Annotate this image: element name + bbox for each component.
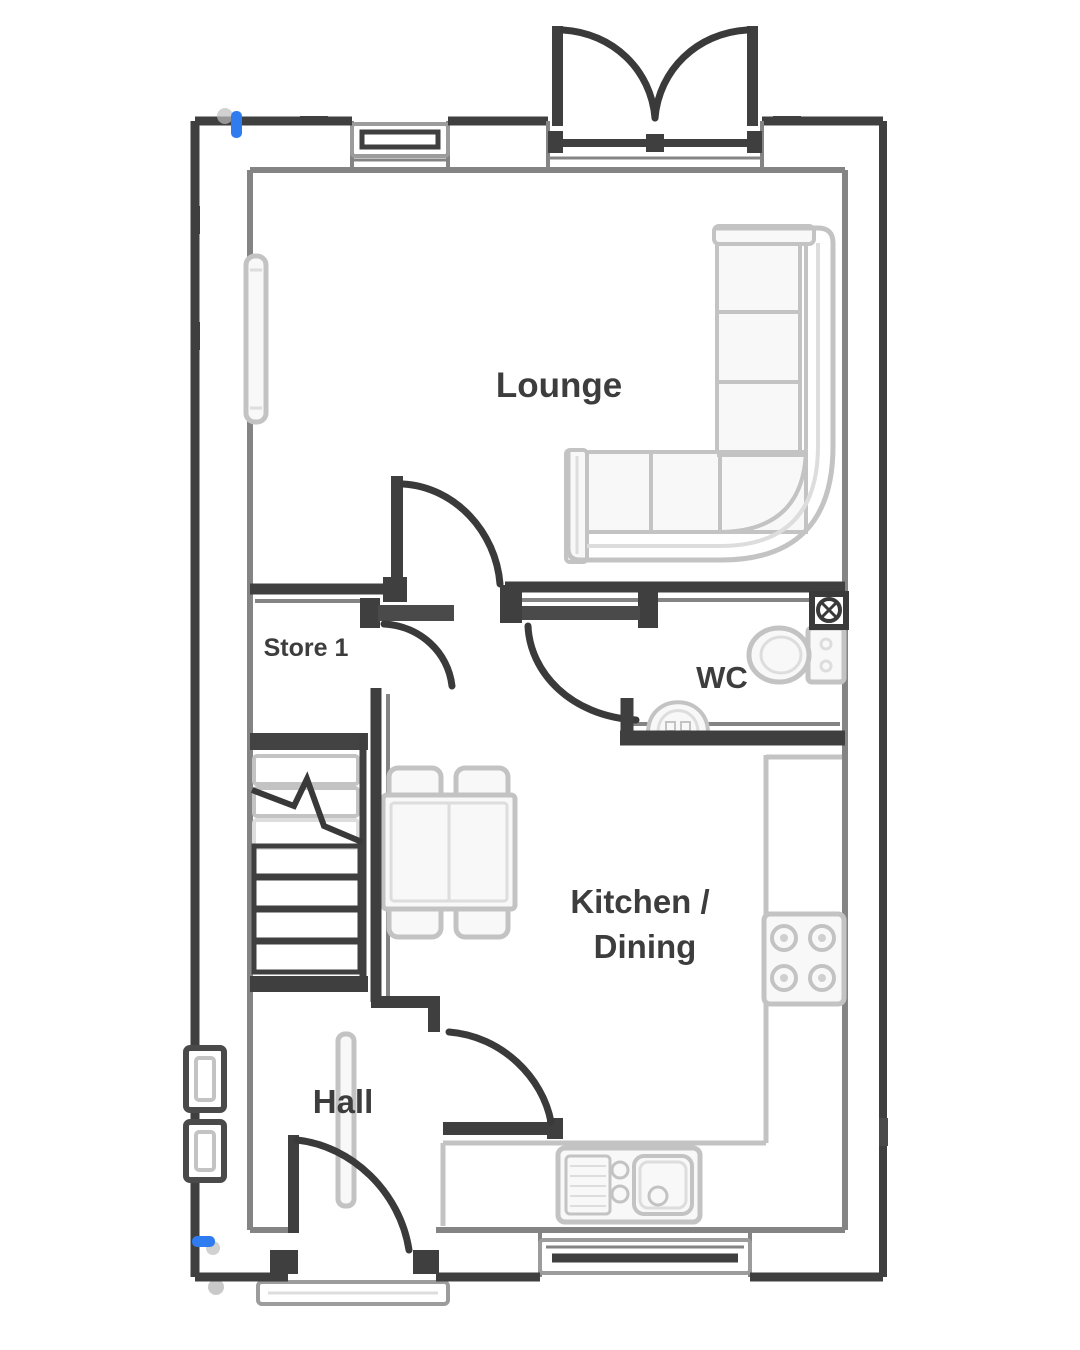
- hall-label: Hall: [313, 1083, 374, 1120]
- kitchen-dining-label-line2: Dining: [594, 928, 697, 965]
- door-threshold: [208, 1279, 448, 1304]
- corner-basin: [648, 702, 708, 733]
- floor-plan-drawing: Lounge Store 1 WC Kitchen / Dining Hall: [0, 0, 1080, 1350]
- french-door-right-leaf: [747, 26, 758, 126]
- sink-drainer: [558, 1148, 700, 1222]
- hall-radiator: [338, 1034, 354, 1206]
- extractor-fan-icon: [812, 594, 846, 627]
- toilet: [749, 628, 844, 682]
- lounge-door: [391, 476, 500, 588]
- lounge-store-wall: [250, 577, 407, 602]
- blue-marker-top: [231, 111, 242, 138]
- dining-table: [383, 795, 515, 909]
- french-doors: [548, 26, 762, 168]
- top-window: [352, 121, 448, 170]
- store-label: Store 1: [264, 634, 349, 662]
- floor-plan-page: Lounge Store 1 WC Kitchen / Dining Hall: [0, 0, 1080, 1350]
- lounge-radiator: [246, 256, 266, 422]
- staircase: [250, 733, 368, 992]
- french-door-left-leaf: [552, 26, 563, 126]
- store-door: [360, 598, 454, 686]
- wc-label: WC: [696, 660, 748, 695]
- kitchen-dining-label-line1: Kitchen /: [570, 883, 709, 920]
- hob: [764, 914, 844, 1004]
- blue-marker-left: [192, 1236, 215, 1247]
- kitchen-window: [540, 1230, 750, 1277]
- kitchen-door: [443, 1032, 563, 1139]
- lounge-label: Lounge: [496, 366, 622, 405]
